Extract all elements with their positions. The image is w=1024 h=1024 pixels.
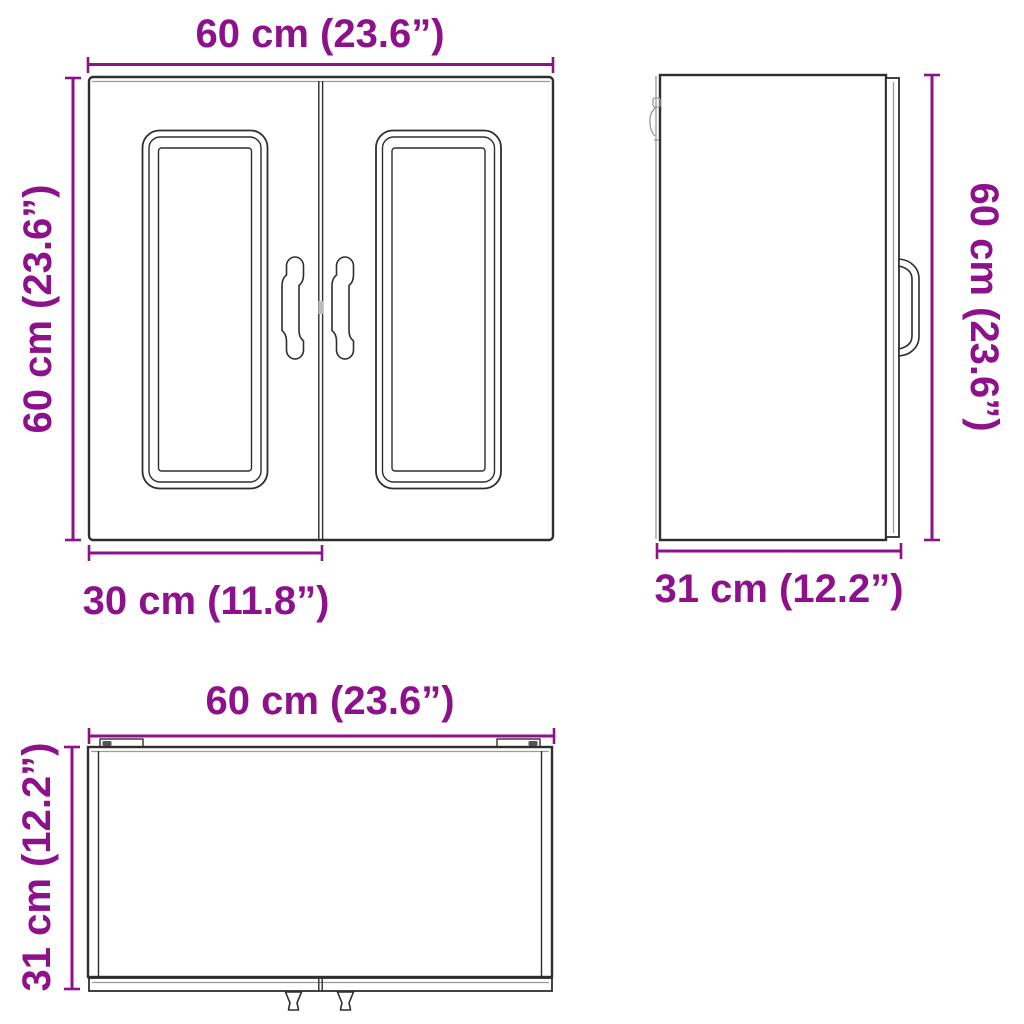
- front-view: [89, 77, 553, 540]
- top-door-front-strip: [89, 978, 552, 991]
- top-width-dimension-line: [89, 728, 554, 744]
- top-width-label: 60 cm (23.6”): [205, 681, 454, 721]
- door-width-label: 30 cm (11.8”): [83, 581, 330, 621]
- left-door-panel: [143, 131, 268, 489]
- side-body-outline: [660, 75, 886, 540]
- front-height-dimension-line: [65, 78, 81, 540]
- top-depth-label: 31 cm (12.2”): [17, 742, 57, 991]
- side-door-front: [886, 78, 899, 537]
- diagram-linework: [0, 0, 1024, 1024]
- side-hinge-detail: [650, 98, 660, 140]
- door-divider-hinge-mark: [318, 301, 323, 314]
- front-width-label: 60 cm (23.6”): [195, 14, 444, 54]
- side-depth-dimension-line: [657, 543, 901, 559]
- top-body-outline: [88, 747, 552, 977]
- top-left-hinge-plate: [100, 739, 143, 747]
- cabinet-dimension-diagram: 60 cm (23.6”) 60 cm (23.6”) 30 cm (11.8”…: [0, 0, 1024, 1024]
- side-view: [650, 75, 919, 540]
- top-left-door-handle: [286, 992, 302, 1010]
- side-depth-label: 31 cm (12.2”): [654, 569, 903, 609]
- top-right-hinge-plate: [497, 739, 540, 747]
- side-height-label: 60 cm (23.6”): [964, 182, 1004, 431]
- top-right-door-handle: [338, 992, 354, 1010]
- side-height-dimension-line: [924, 75, 940, 540]
- side-door-handle: [899, 259, 919, 356]
- top-view: [88, 739, 552, 1010]
- front-height-label: 60 cm (23.6”): [18, 184, 58, 433]
- front-width-dimension-line: [88, 57, 553, 73]
- door-width-dimension-line: [89, 545, 322, 561]
- top-depth-dimension-line: [64, 747, 80, 989]
- right-door-panel: [376, 131, 501, 489]
